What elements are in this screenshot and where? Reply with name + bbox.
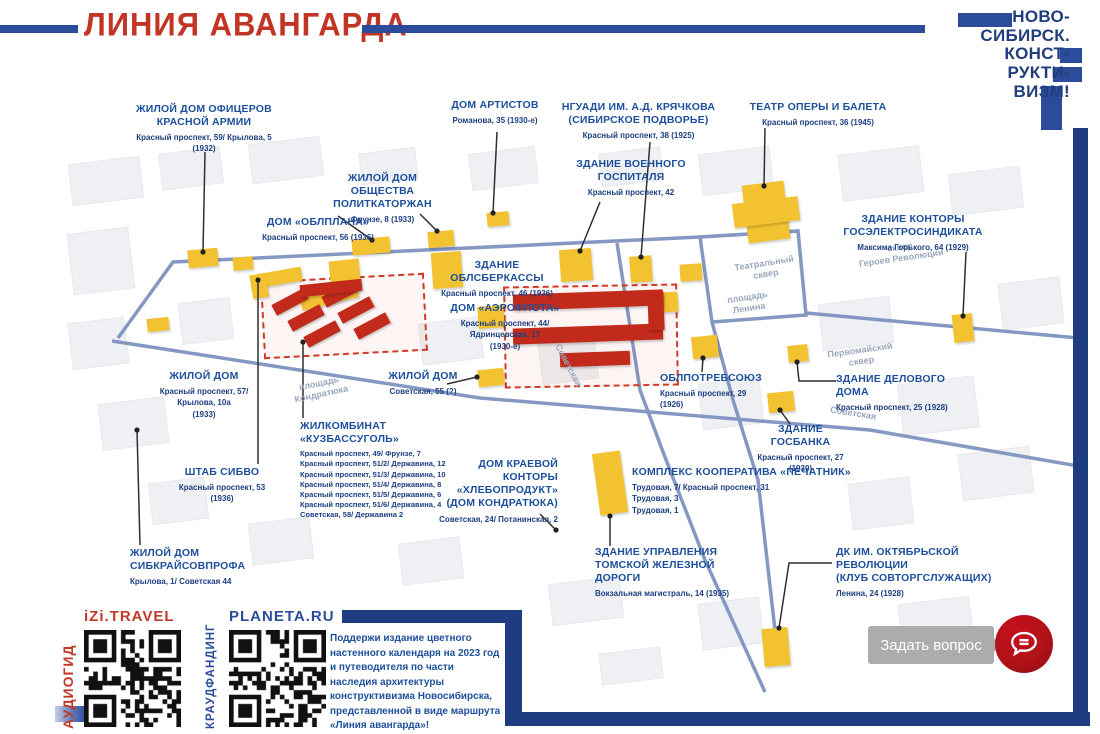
landmark-address: Крылова, 1/ Советская 44 [130,576,300,587]
right-bar [1073,128,1088,726]
landmark-label-dk-october-revolution: ДК ИМ. ОКТЯБРЬСКОЙ РЕВОЛЮЦИИ (КЛУБ СОВТО… [836,546,1021,600]
landmark-name: ЗДАНИЕ ОБЛСБЕРКАССЫ [436,259,558,285]
landmark-label-tomsk-railway: ЗДАНИЕ УПРАВЛЕНИЯ ТОМСКОЙ ЖЕЛЕЗНОЙ ДОРОГ… [595,546,755,600]
landmark-address: Красный проспект, 57/ Крылова, 10а (1933… [150,386,258,420]
landmark-address: Советская, 55 (?) [378,386,468,397]
logo-line: КОНСТ- [980,45,1070,64]
audioguide-vertical-label: АУДИОГИД [60,632,76,729]
landmark-label-shtab-sibvo: ШТАБ СИБВО Красный проспект, 53 (1936) [168,466,276,505]
landmark-name: ЖИЛОЙ ДОМ ОБЩЕСТВА ПОЛИТКАТОРЖАН [305,172,460,211]
landmark-name: ЖИЛОЙ ДОМ СИБКРАЙСОВПРОФА [130,547,300,573]
landmark-label-oblsberkassa: ЗДАНИЕ ОБЛСБЕРКАССЫ Красный проспект, 46… [436,259,558,299]
landmark-label-nguadi: НГУАДИ ИМ. А.Д. КРЯЧКОВА (СИБИРСКОЕ ПОДВ… [556,101,721,141]
landmark-address: Красный проспект, 25 (1928) [836,402,966,413]
landmark-name: ДОМ «АЭРОФЛОТА» [450,302,560,315]
planeta-ru-label: PLANETA.RU [229,608,335,625]
page-title: ЛИНИЯ АВАНГАРДА [84,6,408,44]
crowdfunding-vertical-label: КРАУДФАНДИНГ [205,632,217,729]
landmark-name: ДОМ КРАЕВОЙ КОНТОРЫ «ХЛЕБОПРОДУКТ» (ДОМ … [424,458,558,511]
landmark-address: Фрунзе, 8 (1933) [305,214,460,225]
landmark-label-officers-house: ЖИЛОЙ ДОМ ОФИЦЕРОВ КРАСНОЙ АРМИИ Красный… [88,103,320,155]
landmark-address: Красный проспект, 53 (1936) [168,482,276,504]
ask-question-button[interactable] [995,615,1053,673]
qr-code-planeta-ru [229,630,326,727]
landmark-label-aeroflot-house: ДОМ «АЭРОФЛОТА» Красный проспект, 44/ Яд… [450,302,560,352]
title-rule-left [0,25,78,33]
landmark-address: Красный проспект, 42 [557,187,705,198]
landmark-name: ЗДАНИЕ ДЕЛОВОГО ДОМА [836,373,966,399]
landmark-name: ЖИЛОЙ ДОМ ОФИЦЕРОВ КРАСНОЙ АРМИИ [88,103,320,129]
landmark-address: Красный проспект, 36 (1945) [748,117,888,128]
landmark-address: Романова, 35 (1930-е) [425,115,565,126]
landmark-name: ЗДАНИЕ УПРАВЛЕНИЯ ТОМСКОЙ ЖЕЛЕЗНОЙ ДОРОГ… [595,546,755,585]
logo-line: ВИЗМ! [980,83,1070,102]
logo-line: РУКТИ- [980,64,1070,83]
title-rule-right [362,25,925,33]
landmark-label-politkatorzhan-house: ЖИЛОЙ ДОМ ОБЩЕСТВА ПОЛИТКАТОРЖАН Фрунзе,… [305,172,460,226]
landmark-label-military-hospital: ЗДАНИЕ ВОЕННОГО ГОСПИТАЛЯ Красный проспе… [557,158,705,198]
landmark-label-goselektrosindikat: ЗДАНИЕ КОНТОРЫ ГОСЭЛЕКТРОСИНДИКАТА Макси… [843,213,983,253]
landmark-name: ДК ИМ. ОКТЯБРЬСКОЙ РЕВОЛЮЦИИ (КЛУБ СОВТО… [836,546,1021,585]
landmark-name: ЖИЛОЙ ДОМ [150,370,258,383]
ask-question-tooltip: Задать вопрос [868,626,994,664]
landmark-label-opera-theatre: ТЕАТР ОПЕРЫ И БАЛЕТА Красный проспект, 3… [748,101,888,128]
landmark-name: ЖИЛОЙ ДОМ [378,370,468,383]
bottom-bar [505,712,1090,726]
support-text: Поддержи издание цветного настенного кал… [330,632,502,734]
landmark-name: ШТАБ СИБВО [168,466,276,479]
landmark-name: ЗДАНИЕ ВОЕННОГО ГОСПИТАЛЯ [557,158,705,184]
landmark-label-sibkraysovprof: ЖИЛОЙ ДОМ СИБКРАЙСОВПРОФА Крылова, 1/ Со… [130,547,300,587]
chat-bubble-icon [1007,627,1041,661]
logo-line: НОВО- [980,8,1070,27]
landmark-name: ЖИЛКОМБИНАТ «КУЗБАССУГОЛЬ» [300,420,480,446]
landmark-label-oblpotrebsoyuz: ОБЛПОТРЕБСОЮЗ Красный проспект, 29 (1926… [660,372,770,411]
landmark-address: Красный проспект, 38 (1925) [556,130,721,141]
landmark-name: ДОМ АРТИСТОВ [425,99,565,112]
landmark-address: Красный проспект, 44/ Ядринцевская, 17 (… [450,318,560,352]
landmark-name: НГУАДИ ИМ. А.Д. КРЯЧКОВА (СИБИРСКОЕ ПОДВ… [556,101,721,127]
support-frame-top [342,610,522,623]
landmark-address: Максима Горького, 64 (1929) [843,242,983,253]
landmark-name: КОМПЛЕКС КООПЕРАТИВА «ПЕЧАТНИК» [632,466,857,479]
logo-novosibirsk-konstruktivizm: НОВО- СИБИРСК. КОНСТ- РУКТИ- ВИЗМ! [980,8,1070,101]
logo-line: СИБИРСК. [980,27,1070,46]
landmark-name: ЗДАНИЕ КОНТОРЫ ГОСЭЛЕКТРОСИНДИКАТА [843,213,983,239]
landmark-label-khleboprodukt: ДОМ КРАЕВОЙ КОНТОРЫ «ХЛЕБОПРОДУКТ» (ДОМ … [424,458,558,525]
landmark-address: Ленина, 24 (1928) [836,588,1021,599]
landmark-label-delovoy-dom: ЗДАНИЕ ДЕЛОВОГО ДОМА Красный проспект, 2… [836,373,966,413]
landmark-address: Вокзальная магистраль, 14 (1935) [595,588,755,599]
qr-code-izi-travel [84,630,181,727]
landmark-address: Красный проспект, 56 (1936) [228,232,408,243]
landmark-label-zhiloy-dom-sovetskaya-55: ЖИЛОЙ ДОМ Советская, 55 (?) [378,370,468,397]
landmark-label-pechatnik: КОМПЛЕКС КООПЕРАТИВА «ПЕЧАТНИК» Трудовая… [632,466,857,516]
landmark-address: Красный проспект, 59/ Крылова, 5 (1932) [88,132,320,154]
landmark-address: Трудовая, 7/ Красный проспект, 31 Трудов… [632,482,857,516]
landmark-label-zhiloy-dom-57: ЖИЛОЙ ДОМ Красный проспект, 57/ Крылова,… [150,370,258,420]
landmark-address: Красный проспект, 46 (1936) [436,288,558,299]
landmark-name: ЗДАНИЕ ГОСБАНКА [748,423,853,449]
landmark-name: ОБЛПОТРЕБСОЮЗ [660,372,770,385]
landmark-name: ТЕАТР ОПЕРЫ И БАЛЕТА [748,101,888,114]
landmark-address: Красный проспект, 29 (1926) [660,388,770,410]
izi-travel-label: iZi.TRAVEL [84,608,175,625]
landmark-label-artists-house: ДОМ АРТИСТОВ Романова, 35 (1930-е) [425,99,565,126]
support-frame-right [505,610,522,714]
landmark-address: Советская, 24/ Потанинская, 2 [424,514,558,525]
